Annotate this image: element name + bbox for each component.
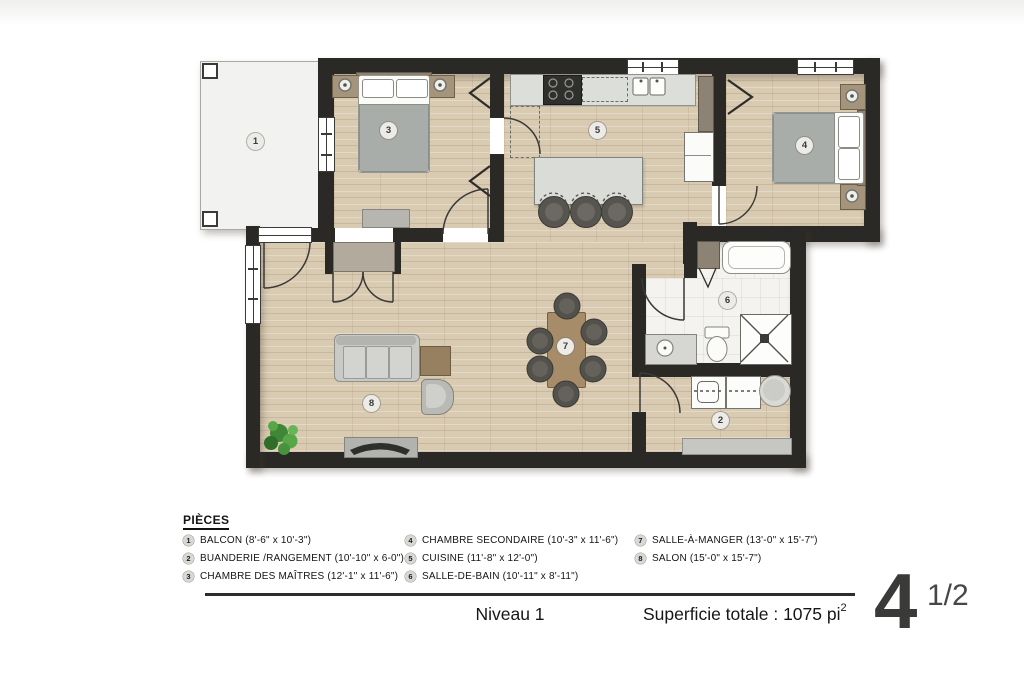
legend-number-badge: 8	[635, 553, 646, 564]
sofa-cushion	[366, 346, 389, 379]
stove	[543, 75, 582, 105]
master-bedroom-window	[318, 117, 335, 172]
legend: PIÈCES 1BALCON (8'-6" x 10'-3") 2BUANDER…	[183, 513, 1003, 530]
side-table	[420, 346, 451, 376]
legend-item: 2BUANDERIE /RANGEMENT (10'-10" x 6-0")	[183, 550, 404, 568]
unit-type-fraction: 1/2	[927, 581, 969, 611]
wall	[692, 226, 880, 242]
legend-item-text: CHAMBRE SECONDAIRE (10'-3" x 11'-6")	[422, 535, 618, 546]
level-label: Niveau 1	[440, 604, 580, 625]
nightstand	[840, 84, 866, 110]
bathroom-vanity	[645, 334, 697, 365]
room-label-buanderie: 2	[712, 412, 729, 429]
room-label-chambre-maitres: 3	[380, 122, 397, 139]
pillow	[838, 148, 860, 180]
legend-title: PIÈCES	[183, 513, 229, 530]
room-label-salon: 8	[363, 395, 380, 412]
blanket	[359, 104, 429, 172]
shower	[740, 314, 792, 365]
nightstand	[840, 184, 866, 210]
washer-door	[697, 381, 719, 403]
legend-item: 6SALLE-DE-BAIN (10'-11" x 8'-11")	[405, 568, 618, 586]
nightstand	[427, 75, 455, 98]
pillow	[838, 116, 860, 148]
entry-closet-shelf	[333, 242, 395, 272]
legend-item: 8SALON (15'-0" x 15'-7")	[635, 550, 818, 568]
sofa-back	[336, 336, 416, 345]
lower-cabinet	[510, 106, 540, 158]
sofa-cushion	[343, 346, 366, 379]
legend-item: 7SALLE-À-MANGER (13'-0" x 15'-7")	[635, 532, 818, 550]
wall	[790, 226, 806, 468]
tall-cabinet	[698, 76, 714, 132]
legend-item-text: SALON (15'-0" x 15'-7")	[652, 553, 761, 564]
legend-number-badge: 6	[405, 571, 416, 582]
wall	[393, 228, 443, 242]
legend-item-text: CHAMBRE DES MAÎTRES (12'-1" x 11'-6")	[200, 571, 398, 582]
legend-item-text: CUISINE (11'-8" x 12'-0")	[422, 553, 538, 564]
bar-stool	[601, 196, 633, 228]
legend-item: 1BALCON (8'-6" x 10'-3")	[183, 532, 404, 550]
legend-number-badge: 2	[183, 553, 194, 564]
legend-column-3: 7SALLE-À-MANGER (13'-0" x 15'-7") 8SALON…	[635, 532, 818, 568]
legend-item: 4CHAMBRE SECONDAIRE (10'-3" x 11'-6")	[405, 532, 618, 550]
legend-item-text: SALLE-À-MANGER (13'-0" x 15'-7")	[652, 535, 818, 546]
wall	[683, 222, 697, 264]
bar-stool	[570, 196, 602, 228]
closet-wall	[325, 242, 333, 274]
room-label-chambre-secondaire: 4	[796, 137, 813, 154]
tv-console	[344, 437, 418, 458]
total-area-label: Superficie totale : 1075 pi2	[643, 604, 847, 625]
bathtub-inner	[728, 246, 785, 269]
legend-column-2: 4CHAMBRE SECONDAIRE (10'-3" x 11'-6") 5C…	[405, 532, 618, 586]
pillow	[396, 79, 428, 98]
refrigerator-door-line	[685, 155, 711, 156]
legend-number-badge: 4	[405, 535, 416, 546]
nightstand	[332, 75, 360, 98]
wall	[684, 264, 697, 278]
legend-item-text: SALLE-DE-BAIN (10'-11" x 8'-11")	[422, 571, 578, 582]
laundry-counter	[682, 438, 792, 455]
balcony-post	[202, 211, 218, 227]
pillow	[362, 79, 394, 98]
wall	[310, 228, 335, 242]
footer-rule	[205, 593, 855, 596]
wall	[490, 154, 504, 242]
legend-item-text: BALCON (8'-6" x 10'-3")	[200, 535, 311, 546]
bed-bench	[362, 209, 410, 228]
wall	[712, 74, 726, 186]
room-label-balcon: 1	[247, 133, 264, 150]
counter-cabinet	[582, 77, 628, 102]
wall	[864, 58, 880, 242]
laundry-basket-inner	[763, 379, 785, 401]
balcony-post	[202, 63, 218, 79]
kitchen-window	[627, 59, 679, 75]
sofa-cushion	[389, 346, 412, 379]
legend-number-badge: 7	[635, 535, 646, 546]
wall	[632, 363, 792, 377]
total-area-exponent: 2	[841, 602, 847, 614]
legend-item: 3CHAMBRE DES MAÎTRES (12'-1" x 11'-6")	[183, 568, 404, 586]
legend-item: 5CUISINE (11'-8" x 12'-0")	[405, 550, 618, 568]
room-label-salle-de-bain: 6	[719, 292, 736, 309]
room-label-cuisine: 5	[589, 122, 606, 139]
legend-column-1: 1BALCON (8'-6" x 10'-3") 2BUANDERIE /RAN…	[183, 532, 404, 586]
wall	[490, 74, 504, 118]
dryer	[726, 376, 761, 409]
room-label-salle-a-manger: 7	[557, 338, 574, 355]
legend-number-badge: 5	[405, 553, 416, 564]
unit-type-number: 4	[874, 562, 917, 640]
bar-stool	[538, 196, 570, 228]
legend-number-badge: 1	[183, 535, 194, 546]
refrigerator	[684, 132, 714, 182]
bedroom-window	[797, 59, 854, 75]
balcony-patio-door	[258, 227, 312, 243]
floor-plan: 1 2 3 4 5 6 7 8	[0, 0, 1024, 500]
wall	[632, 264, 646, 374]
wall	[632, 412, 646, 454]
linen-closet	[697, 241, 720, 269]
legend-item-text: BUANDERIE /RANGEMENT (10'-10" x 6-0")	[200, 553, 404, 564]
living-room-window	[245, 245, 261, 324]
legend-number-badge: 3	[183, 571, 194, 582]
floor-plan-page: 1 2 3 4 5 6 7 8 PIÈCES 1BALCON (8'-6" x …	[0, 0, 1024, 683]
total-area-text: Superficie totale : 1075 pi	[643, 604, 841, 624]
